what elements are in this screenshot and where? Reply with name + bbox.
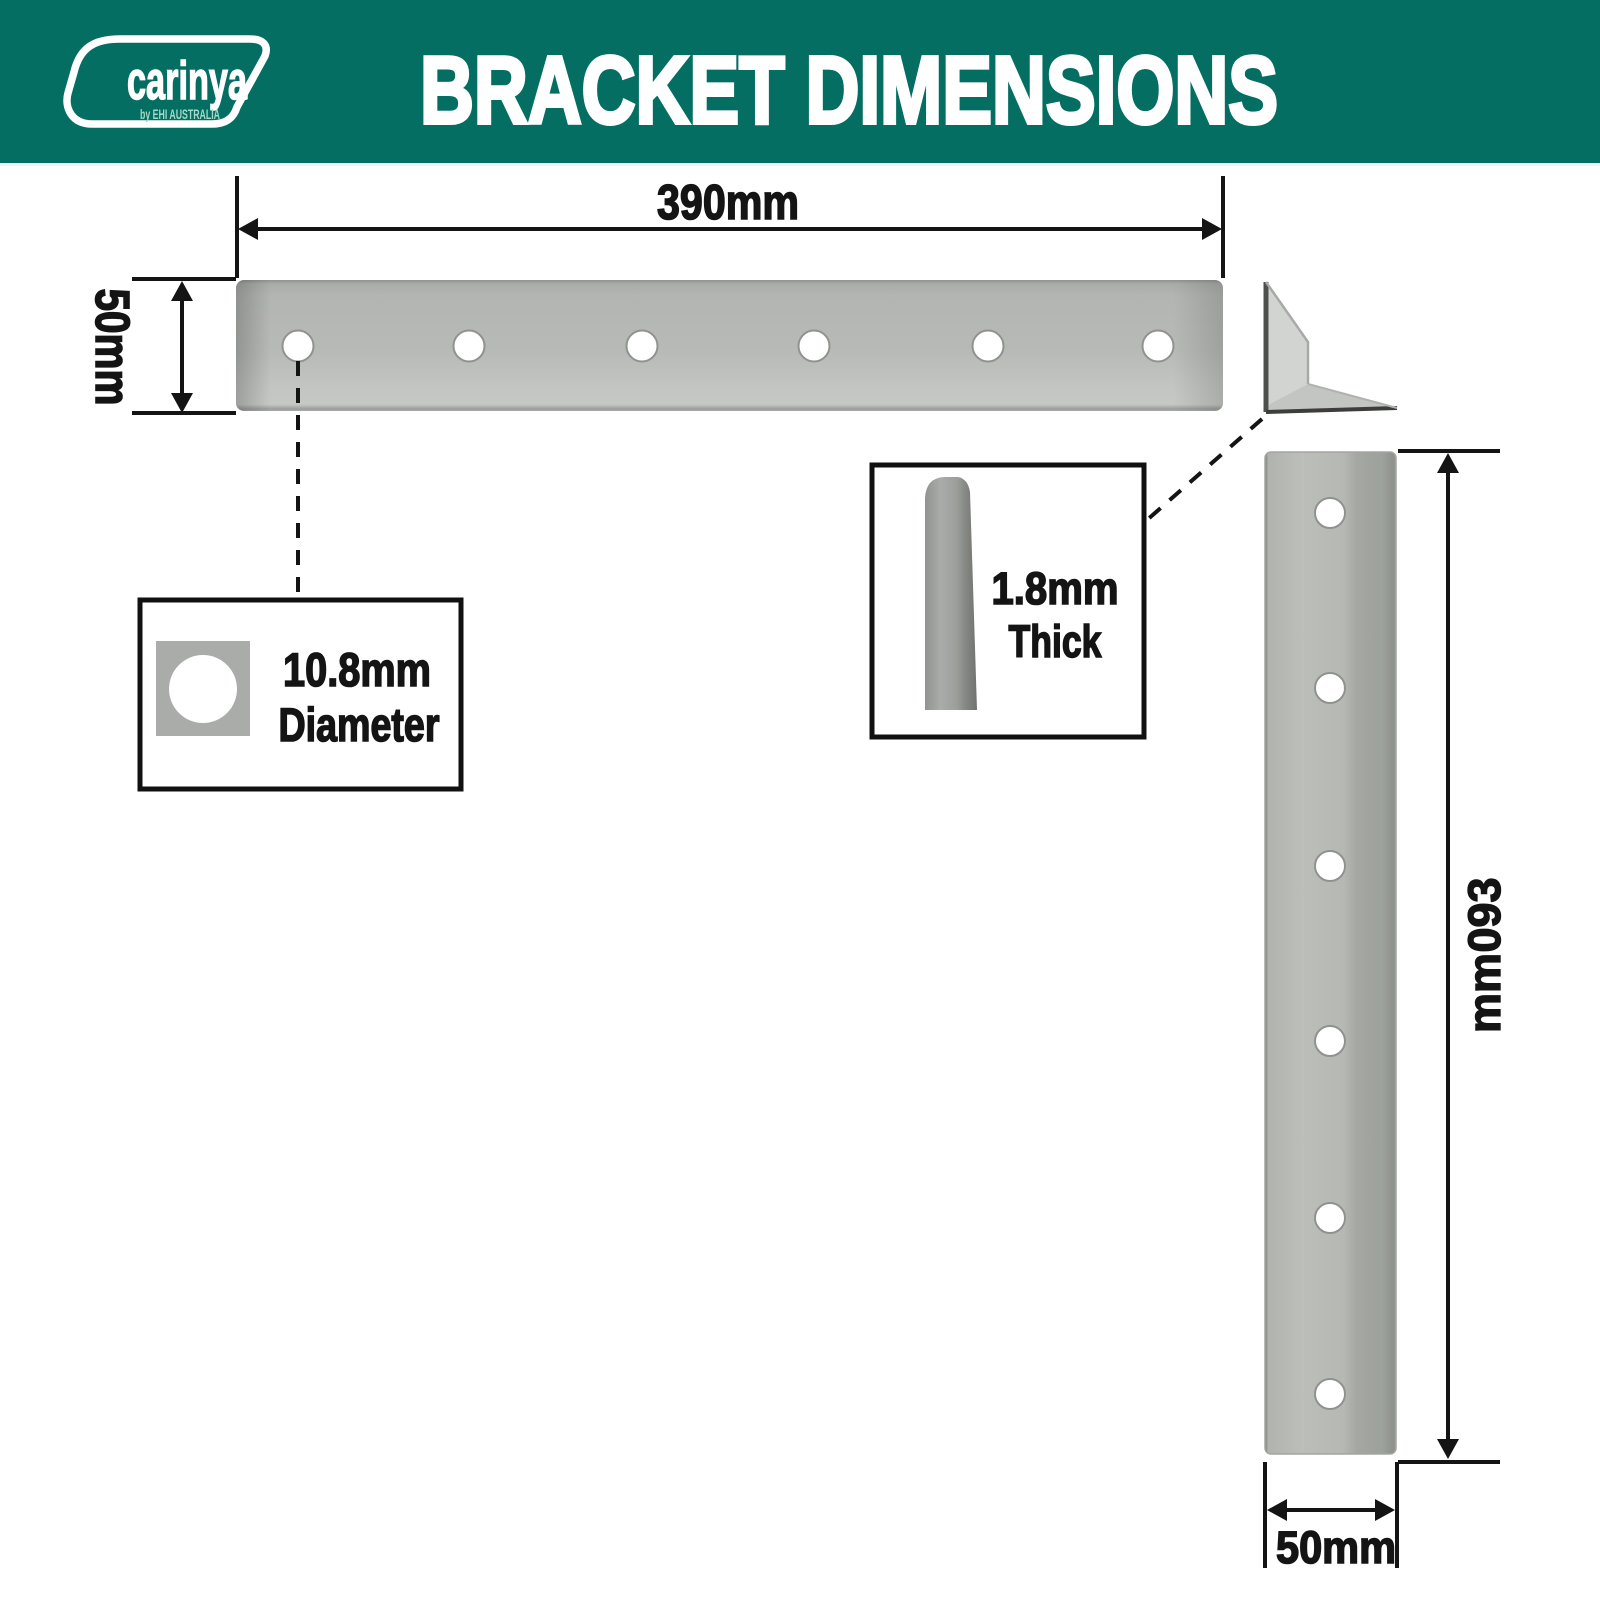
svg-text:m: m: [1459, 953, 1510, 993]
svg-text:9: 9: [1459, 902, 1510, 927]
svg-text:3: 3: [1459, 877, 1510, 902]
svg-text:1.8mm: 1.8mm: [992, 563, 1119, 614]
svg-text:Thick: Thick: [1009, 616, 1103, 667]
svg-text:0: 0: [1459, 927, 1510, 952]
svg-text:50mm: 50mm: [85, 289, 138, 406]
svg-text:Diameter: Diameter: [279, 698, 440, 751]
svg-text:m: m: [1459, 993, 1510, 1033]
svg-text:390mm: 390mm: [657, 176, 799, 230]
svg-text:carinya: carinya: [127, 51, 248, 111]
svg-text:50mm: 50mm: [1276, 1522, 1396, 1573]
svg-text:10.8mm: 10.8mm: [283, 643, 431, 696]
svg-text:by EHI AUSTRALIA: by EHI AUSTRALIA: [140, 107, 220, 122]
svg-text:BRACKET DIMENSIONS: BRACKET DIMENSIONS: [420, 37, 1278, 144]
